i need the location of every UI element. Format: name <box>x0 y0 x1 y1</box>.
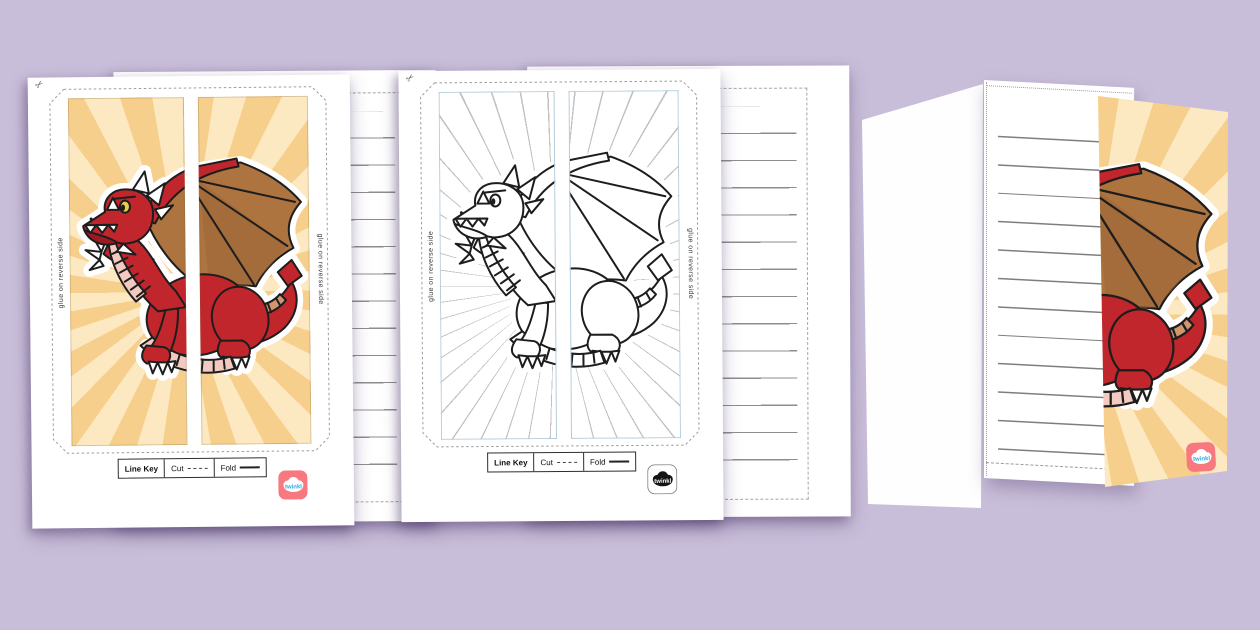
fold-label: Fold <box>220 463 236 472</box>
twinkl-logo-text: twinkl <box>654 479 671 485</box>
twinkl-logo: twinkl <box>278 470 308 500</box>
fold-line-sample <box>240 466 260 468</box>
fold-perforation <box>986 82 987 476</box>
line-key-title: Line Key <box>488 453 534 471</box>
twinkl-logo: twinkl <box>1185 441 1217 473</box>
cut-mark-top <box>986 85 1132 94</box>
bookmark-panels-outline <box>439 90 681 440</box>
twinkl-logo-text: twinkl <box>1193 456 1211 463</box>
fold-line-sample <box>610 461 630 463</box>
cut-label: Cut <box>171 464 184 473</box>
bookmark-panels-colored <box>68 96 312 446</box>
cut-line-sample <box>557 461 577 462</box>
twinkl-logo-text: twinkl <box>285 484 302 490</box>
fold-label: Fold <box>590 457 606 466</box>
line-key-title: Line Key <box>119 459 166 477</box>
glue-note-left: glue on reverse side <box>424 92 439 440</box>
product-preview: ✂ glue on reverse side glue on reverse s… <box>0 0 1260 630</box>
worksheet-outline-page: ✂ glue on reverse side glue on reverse s… <box>398 69 723 522</box>
cut-line-sample <box>188 467 208 468</box>
line-key-table: Line Key Cut Fold <box>118 457 268 479</box>
worksheet-colored-page: ✂ glue on reverse side glue on reverse s… <box>28 74 355 528</box>
cut-label: Cut <box>540 458 553 467</box>
twinkl-logo-bw: twinkl <box>647 464 677 494</box>
line-key-table: Line Key Cut Fold <box>487 451 636 472</box>
card-front-cover: twinkl <box>1096 94 1230 488</box>
card-back-flap <box>838 84 984 508</box>
fold-gap <box>555 91 571 439</box>
glue-note-right: glue on reverse side <box>683 90 698 438</box>
